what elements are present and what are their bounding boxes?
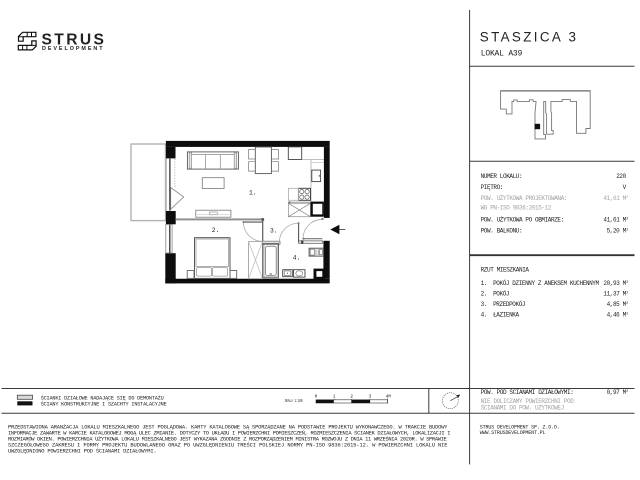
svg-text:4,85 M: 4,85 M — [607, 301, 627, 308]
svg-text:5,20 M: 5,20 M — [607, 227, 627, 234]
svg-text:3.: 3. — [270, 227, 278, 234]
svg-text:2.: 2. — [481, 291, 487, 298]
svg-text:2.: 2. — [212, 227, 220, 234]
svg-text:2: 2 — [626, 228, 628, 232]
svg-text:4.: 4. — [481, 312, 487, 319]
svg-text:1.: 1. — [249, 189, 257, 196]
svg-text:2: 2 — [626, 313, 628, 317]
svg-text:3.: 3. — [481, 301, 487, 308]
svg-text:NUMER LOKALU:: NUMER LOKALU: — [481, 173, 523, 180]
svg-text:PRZEDSTAWIONA ARANŻACJA LOKALU: PRZEDSTAWIONA ARANŻACJA LOKALU MIESZKALN… — [8, 424, 448, 431]
svg-text:PRZEDPOKÓJ: PRZEDPOKÓJ — [493, 301, 525, 308]
svg-text:2: 2 — [626, 302, 628, 306]
svg-text:WWW.STRUSDEVELOPMENT.PL: WWW.STRUSDEVELOPMENT.PL — [480, 430, 546, 436]
svg-text:RZUT MIESZKANIA: RZUT MIESZKANIA — [481, 267, 530, 274]
svg-text:POW. BALKONU:: POW. BALKONU: — [481, 227, 523, 234]
svg-text:41,61 M: 41,61 M — [603, 217, 626, 224]
svg-text:POKÓJ: POKÓJ — [493, 291, 509, 298]
svg-text:INFORMACJE ZAWARTE W KARCIE KA: INFORMACJE ZAWARTE W KARCIE KATALOGOWEJ … — [8, 430, 450, 437]
svg-text:ŚCIANAMI DO POW. UŻYTKOWEJ: ŚCIANAMI DO POW. UŻYTKOWEJ — [481, 404, 564, 411]
svg-text:2: 2 — [626, 390, 628, 394]
svg-text:ŁAZIENKA: ŁAZIENKA — [493, 312, 519, 319]
svg-text:2: 2 — [626, 218, 628, 222]
svg-text:3: 3 — [369, 394, 372, 399]
svg-text:SZCZEGÓŁOWEGO ZAKRESU I FORMY: SZCZEGÓŁOWEGO ZAKRESU I FORMY PROJEKTU B… — [8, 442, 447, 449]
svg-text:UWZGLĘDNIONO POWIERZCHNI POD Ś: UWZGLĘDNIONO POWIERZCHNI POD ŚCIANAMI DZ… — [8, 448, 157, 455]
svg-text:POW. UŻYTKOWA PROJEKTOWANA:: POW. UŻYTKOWA PROJEKTOWANA: — [481, 195, 567, 202]
svg-text:220: 220 — [616, 173, 626, 180]
svg-text:2: 2 — [350, 394, 353, 399]
svg-text:4.: 4. — [293, 255, 301, 262]
svg-text:11,37 M: 11,37 M — [603, 291, 626, 298]
svg-text:0,97 M: 0,97 M — [607, 389, 627, 396]
svg-text:LOKAL A39: LOKAL A39 — [481, 49, 523, 58]
svg-text:2: 2 — [626, 196, 628, 200]
svg-text:POW. UŻYTKOWA PO OBMIARZE:: POW. UŻYTKOWA PO OBMIARZE: — [481, 217, 564, 224]
svg-text:ŚCIANY KONSTRUKCYJNE I SZACHTY: ŚCIANY KONSTRUKCYJNE I SZACHTY INSTALACY… — [41, 400, 167, 407]
svg-text:ROZMIARÓW OKIEN. POWIERZCHNIA: ROZMIARÓW OKIEN. POWIERZCHNIA UŻYTKOWA L… — [8, 436, 447, 443]
svg-text:SKALA 1:100: SKALA 1:100 — [285, 398, 303, 404]
svg-text:V: V — [623, 184, 627, 191]
svg-text:0: 0 — [315, 394, 318, 399]
svg-text:WG PN-ISO 9836:2015-12: WG PN-ISO 9836:2015-12 — [481, 204, 552, 211]
svg-text:1: 1 — [333, 394, 336, 399]
svg-text:4M: 4M — [386, 394, 392, 399]
svg-text:PIĘTRO:: PIĘTRO: — [481, 184, 503, 191]
svg-text:4,46 M: 4,46 M — [607, 312, 627, 319]
svg-text:41,61 M: 41,61 M — [603, 195, 626, 202]
svg-text:DEVELOPMENT: DEVELOPMENT — [42, 46, 104, 52]
svg-text:POW. POD ŚCIANAMI DZIAŁOWYMI:: POW. POD ŚCIANAMI DZIAŁOWYMI: — [481, 389, 574, 396]
svg-text:2: 2 — [626, 281, 628, 285]
svg-text:1.: 1. — [481, 280, 487, 287]
svg-text:20,93 M: 20,93 M — [603, 280, 626, 287]
svg-text:2: 2 — [626, 292, 628, 296]
svg-text:ŚCIANKI DZIAŁOWE NADAJĄCE SIĘ: ŚCIANKI DZIAŁOWE NADAJĄCE SIĘ DO DEMONTA… — [41, 394, 164, 401]
svg-text:STASZICA 3: STASZICA 3 — [480, 30, 576, 45]
svg-text:POKÓJ DZIENNY Z ANEKSEM KUCHEN: POKÓJ DZIENNY Z ANEKSEM KUCHENNYM — [493, 280, 599, 287]
